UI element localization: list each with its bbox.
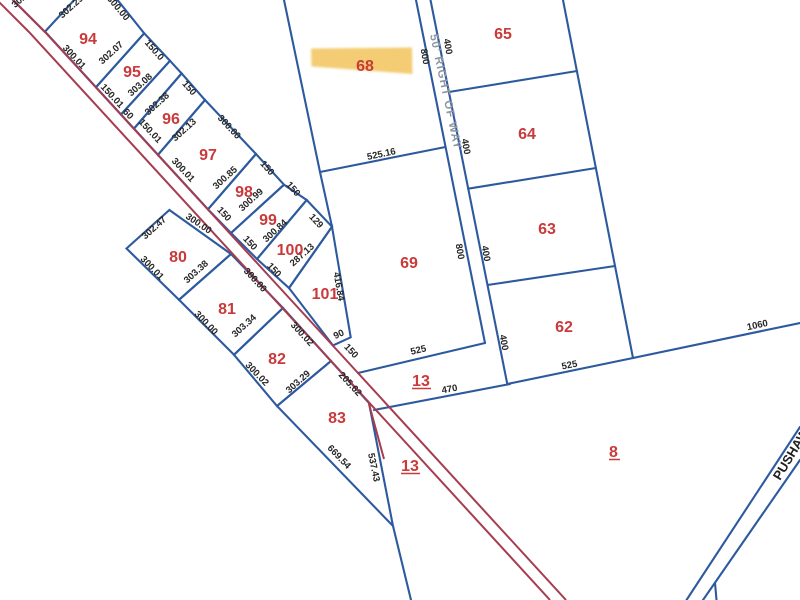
svg-text:95: 95 bbox=[123, 64, 141, 81]
svg-text:83: 83 bbox=[328, 410, 346, 427]
svg-text:100: 100 bbox=[277, 242, 304, 259]
svg-text:13: 13 bbox=[401, 458, 419, 475]
svg-text:99: 99 bbox=[259, 212, 277, 229]
svg-text:68: 68 bbox=[356, 58, 374, 75]
svg-text:69: 69 bbox=[400, 255, 418, 272]
svg-text:63: 63 bbox=[538, 221, 556, 238]
svg-text:81: 81 bbox=[218, 301, 236, 318]
svg-text:96: 96 bbox=[162, 111, 180, 128]
svg-text:82: 82 bbox=[268, 351, 286, 368]
svg-text:64: 64 bbox=[518, 126, 536, 143]
svg-text:101: 101 bbox=[312, 286, 339, 303]
svg-text:94: 94 bbox=[79, 31, 97, 48]
svg-text:97: 97 bbox=[199, 147, 217, 164]
svg-text:13: 13 bbox=[412, 373, 430, 390]
svg-text:65: 65 bbox=[494, 26, 512, 43]
svg-text:62: 62 bbox=[555, 319, 573, 336]
svg-text:80: 80 bbox=[169, 249, 187, 266]
svg-text:8: 8 bbox=[609, 444, 618, 461]
svg-text:98: 98 bbox=[235, 184, 253, 201]
